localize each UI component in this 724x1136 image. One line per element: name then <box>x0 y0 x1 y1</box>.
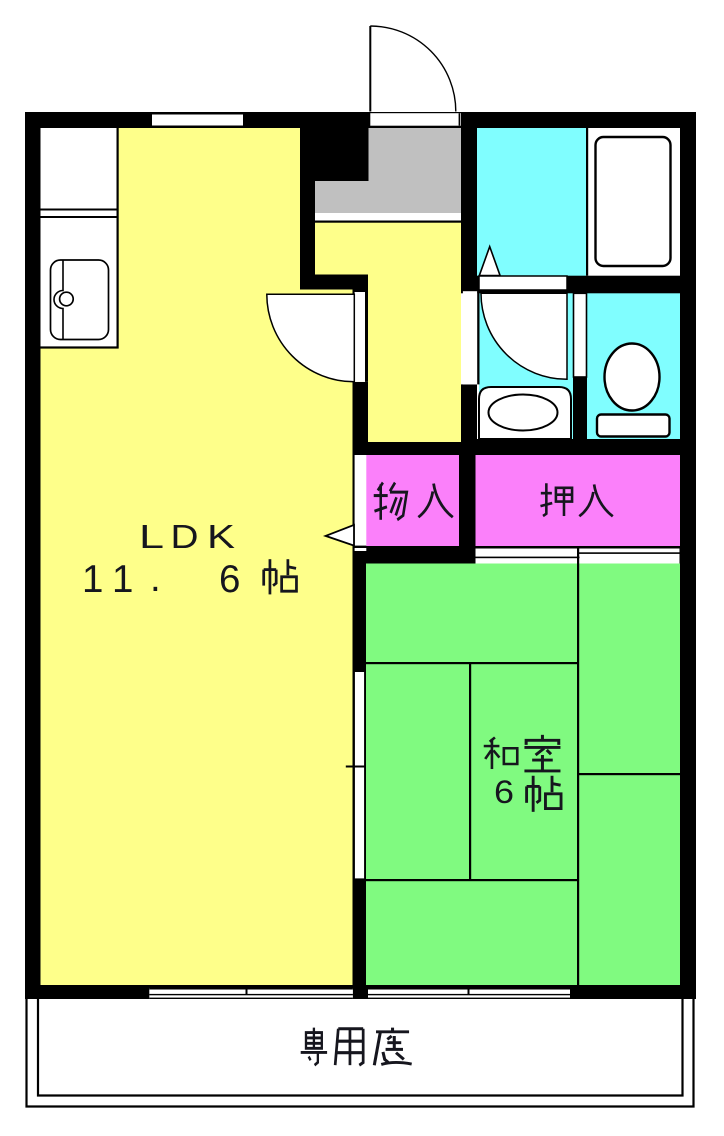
svg-text:6: 6 <box>219 558 240 601</box>
svg-text:D: D <box>171 518 199 555</box>
svg-text:L: L <box>139 518 164 555</box>
svg-text:1: 1 <box>112 558 133 601</box>
svg-text:1: 1 <box>82 558 103 601</box>
svg-text:K: K <box>207 518 235 555</box>
svg-text:6: 6 <box>494 774 514 810</box>
svg-text:.: . <box>150 557 161 600</box>
